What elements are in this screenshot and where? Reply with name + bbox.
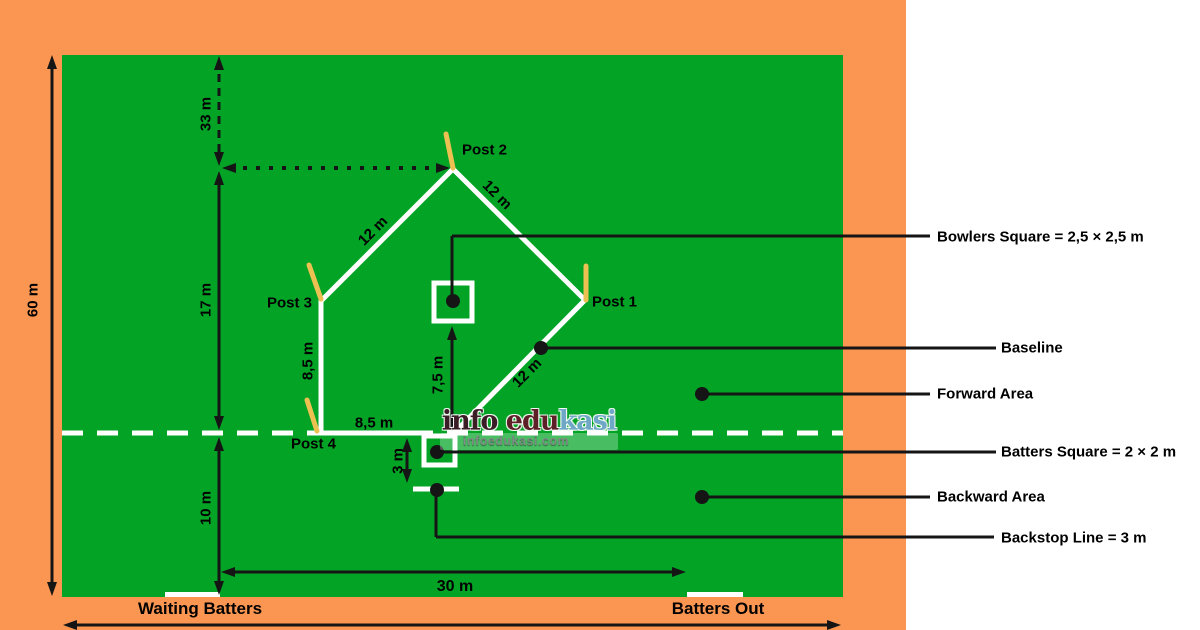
dim-33m-label: 33 m xyxy=(198,97,215,131)
watermark-brand-part2: edu xyxy=(506,406,559,437)
batters-out-marker xyxy=(687,592,743,597)
bowlers-square-dot xyxy=(446,294,460,308)
dim-3m-label: 3 m xyxy=(390,448,407,474)
forward-area-label: Forward Area xyxy=(937,386,1033,403)
dim-8-5m-horizontal-label: 8,5 m xyxy=(355,415,393,432)
waiting-batters-marker xyxy=(165,592,220,597)
baseline-label: Baseline xyxy=(1001,340,1063,357)
dim-10m-label: 10 m xyxy=(198,491,215,525)
forward-area-dot xyxy=(695,387,709,401)
batters-out-label: Batters Out xyxy=(672,599,765,619)
dim-8-5m-vertical-label: 8,5 m xyxy=(300,342,317,380)
post3-label: Post 3 xyxy=(267,295,312,312)
backstop-line-label: Backstop Line = 3 m xyxy=(1001,530,1146,547)
watermark-site: infoedukasi.com xyxy=(463,434,569,448)
backward-area-label: Backward Area xyxy=(937,489,1045,506)
post2-label: Post 2 xyxy=(462,142,507,159)
bowlers-square-label: Bowlers Square = 2,5 × 2,5 m xyxy=(937,229,1144,246)
playing-field xyxy=(62,55,843,597)
rounders-field-diagram: 60 m 33 m 17 m 10 m 12 m 12 m 12 m 8,5 m… xyxy=(0,0,1200,630)
watermark-brand-part3: kasi xyxy=(558,406,616,437)
watermark-brand-part1: info xyxy=(442,406,506,437)
dim-7-5m-label: 7,5 m xyxy=(430,356,447,394)
backstop-dot xyxy=(430,483,444,497)
dim-17m-label: 17 m xyxy=(198,283,215,317)
post1-label: Post 1 xyxy=(592,294,637,311)
baseline-dot xyxy=(534,341,548,355)
waiting-batters-label: Waiting Batters xyxy=(138,599,262,619)
batters-square-label: Batters Square = 2 × 2 m xyxy=(1001,444,1176,461)
post4-label: Post 4 xyxy=(291,436,336,453)
watermark-brand: info edukasi xyxy=(442,406,616,437)
dim-60m-label: 60 m xyxy=(25,283,42,317)
dim-30m-label: 30 m xyxy=(437,578,473,596)
backward-area-dot xyxy=(695,490,709,504)
